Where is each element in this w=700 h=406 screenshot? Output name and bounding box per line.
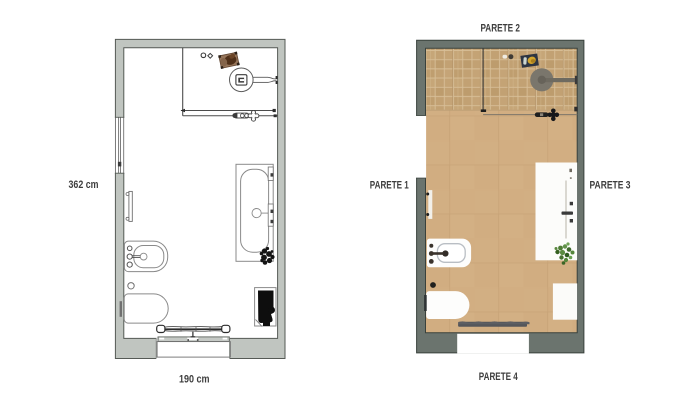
svg-text:362 cm: 362 cm: [69, 179, 99, 191]
svg-text:PARETE 4: PARETE 4: [479, 371, 519, 383]
svg-text:PARETE 1: PARETE 1: [370, 179, 409, 191]
svg-text:PARETE 2: PARETE 2: [480, 22, 520, 34]
svg-text:190 cm: 190 cm: [179, 373, 210, 385]
svg-text:PARETE 3: PARETE 3: [590, 180, 631, 192]
